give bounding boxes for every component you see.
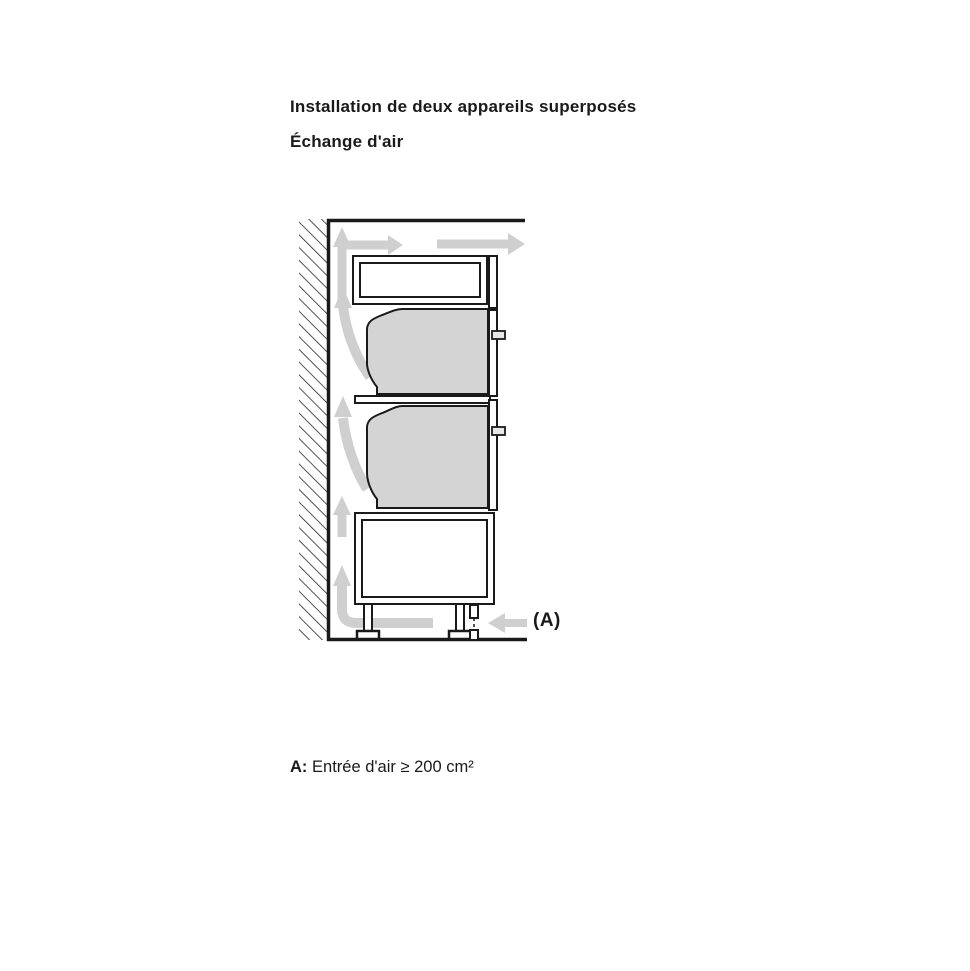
right-foot [449, 631, 471, 639]
middle-shelf [355, 396, 490, 403]
airflow-arrow-up-middle-icon [333, 496, 351, 537]
legend-description: Entrée d'air ≥ 200 cm² [312, 758, 474, 776]
airflow-arrow-right-long-icon [437, 233, 525, 255]
airflow-arrow-curved-lower-icon [334, 396, 367, 489]
base-cabinet-inner [362, 520, 487, 597]
plinth-bracket-bottom [470, 630, 478, 640]
lower-oven-front-trim [489, 400, 497, 510]
plinth-bracket-top [470, 605, 478, 618]
legend-term: A: [290, 758, 307, 776]
lower-oven-body [367, 406, 488, 508]
air-inlet-arrow-left-icon [488, 613, 527, 633]
air-inlet-label: (A) [533, 610, 561, 632]
air-exchange-diagram [0, 0, 970, 971]
airflow-arrow-right-short-icon [341, 235, 403, 255]
cabinet [353, 256, 505, 640]
left-foot [357, 631, 379, 639]
lower-oven-handle [492, 427, 505, 435]
airflow-arrow-up-top-icon [333, 227, 351, 300]
left-leg [364, 604, 372, 631]
upper-oven-front-trim [489, 310, 497, 396]
manual-page: Installation de deux appareils superposé… [0, 0, 970, 971]
upper-oven-body [367, 309, 488, 394]
legend: A: Entrée d'air ≥ 200 cm² [290, 758, 474, 777]
right-leg [456, 604, 464, 631]
cabinet-front-edge-top [489, 256, 497, 308]
upper-oven-handle [492, 331, 505, 339]
wall-hatching [299, 219, 328, 640]
top-vent-compartment-inner [360, 263, 480, 297]
